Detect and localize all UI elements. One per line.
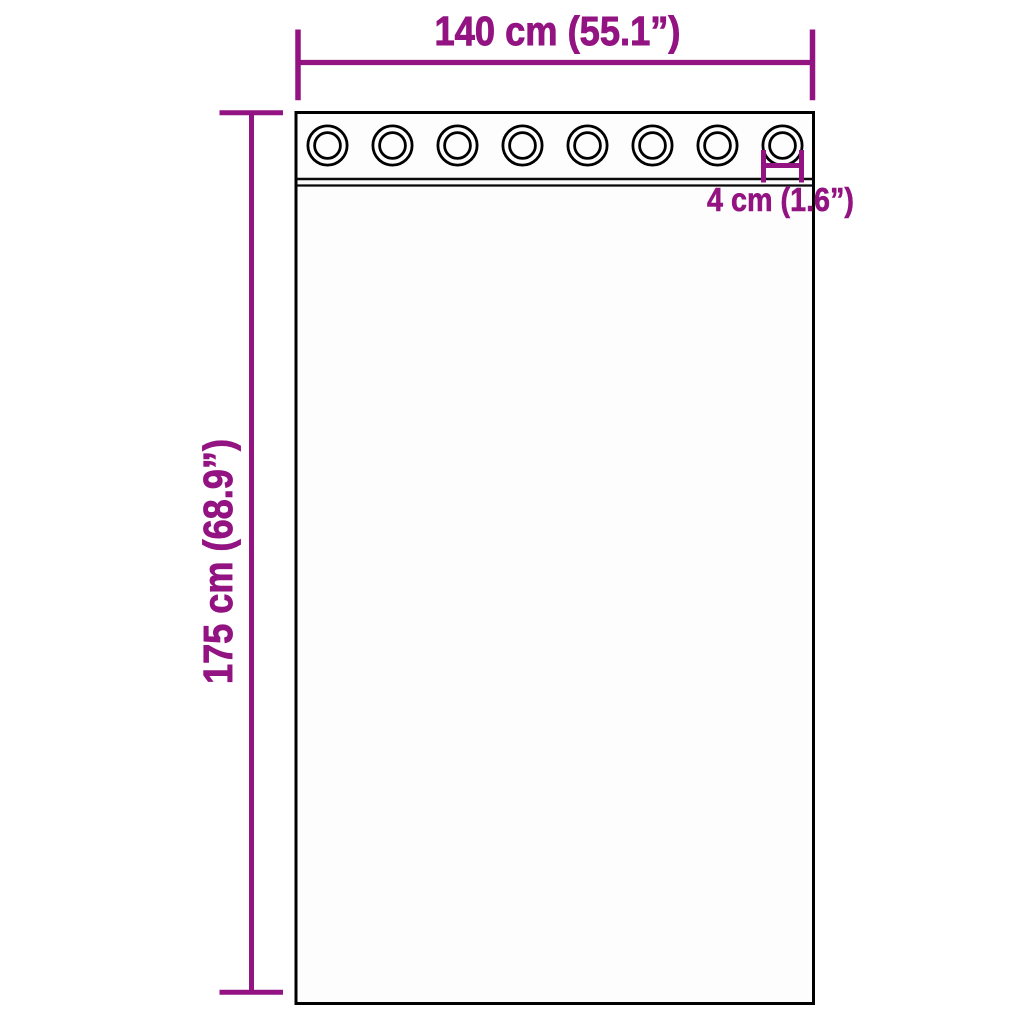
- svg-text:4 cm (1.6”): 4 cm (1.6”): [707, 181, 854, 218]
- svg-text:140 cm (55.1”): 140 cm (55.1”): [435, 8, 681, 54]
- svg-text:175 cm (68.9”): 175 cm (68.9”): [195, 439, 241, 684]
